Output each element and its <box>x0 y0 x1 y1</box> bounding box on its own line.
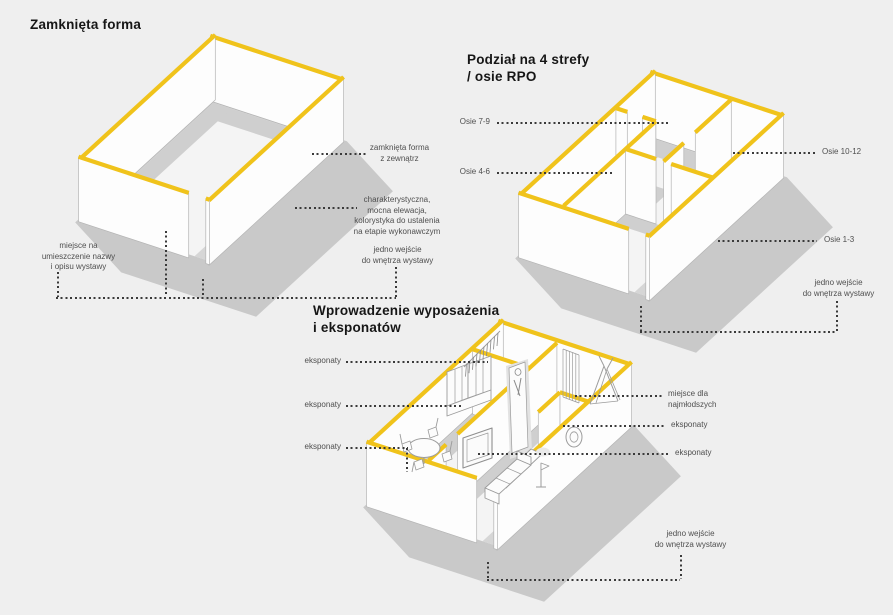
annotation-axes-4-6: Osie 4-6 <box>438 167 490 178</box>
diagram-closed-form <box>75 35 393 317</box>
leader-line <box>575 395 663 397</box>
title-equipment: Wprowadzenie wyposażenia i eksponatów <box>313 302 499 336</box>
leader-line <box>718 240 817 242</box>
leader-line <box>836 301 838 331</box>
leader-line <box>497 122 668 124</box>
annotation-entrance-d2: jedno wejście do wnętrza wystawy <box>791 278 886 299</box>
leader-line <box>202 279 204 297</box>
leader-line <box>733 152 817 154</box>
annotation-axes-10-12: Osie 10-12 <box>822 147 884 158</box>
annotation-axes-1-3: Osie 1-3 <box>824 235 876 246</box>
annotation-exhibits-left-2: eksponaty <box>291 400 341 411</box>
annotation-entrance-d1: jedno wejście do wnętrza wystawy <box>350 245 445 266</box>
annotation-exhibits-right-1: eksponaty <box>671 420 731 431</box>
annotation-name-place: miejsce na umieszczenie nazwy i opisu wy… <box>30 241 127 273</box>
diagram-canvas: Zamknięta forma Podział na 4 strefy / os… <box>0 0 893 615</box>
leader-line <box>312 153 368 155</box>
title-zones: Podział na 4 strefy / osie RPO <box>467 51 589 85</box>
diagram-zones <box>515 71 833 353</box>
leader-line <box>563 425 665 427</box>
leader-line <box>346 447 408 449</box>
leader-line <box>640 306 642 331</box>
leader-line <box>56 297 396 299</box>
leader-line <box>406 448 408 472</box>
leader-line <box>346 361 488 363</box>
annotation-exhibits-left-1: eksponaty <box>291 356 341 367</box>
leader-line <box>487 562 489 579</box>
leader-line <box>680 555 682 579</box>
annotation-entrance-d3: jedno wejście do wnętrza wystawy <box>643 529 738 550</box>
leader-line <box>295 207 357 209</box>
leader-line <box>478 453 668 455</box>
annotation-facade: charakterystyczna, mocna elewacja, kolor… <box>345 195 449 237</box>
leader-line <box>346 405 462 407</box>
leader-line <box>57 272 59 297</box>
leader-line <box>487 579 680 581</box>
annotation-exhibits-left-3: eksponaty <box>291 442 341 453</box>
leader-line <box>395 267 397 297</box>
annotation-exhibits-right-2: eksponaty <box>675 448 735 459</box>
annotation-kids-place: miejsce dla najmłodszych <box>668 389 738 410</box>
leader-line <box>165 231 167 297</box>
leader-line <box>640 331 836 333</box>
annotation-axes-7-9: Osie 7-9 <box>438 117 490 128</box>
title-closed-form: Zamknięta forma <box>30 16 141 33</box>
leader-line <box>497 172 612 174</box>
